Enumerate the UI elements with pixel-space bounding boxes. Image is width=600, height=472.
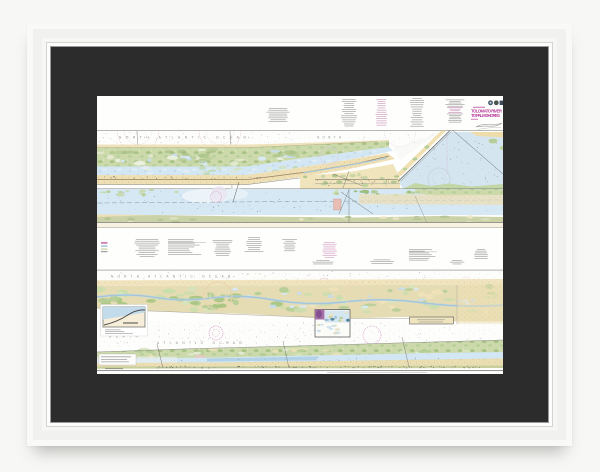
svg-text:ATLANTIC OCEAN: ATLANTIC OCEAN [157,341,246,345]
svg-text:TO PALM SHORES: TO PALM SHORES [471,113,500,118]
svg-text:NORTH ATLANTIC OCEAN: NORTH ATLANTIC OCEAN [119,136,250,140]
svg-text:NORTH: NORTH [317,136,344,140]
svg-text:NORTH ATLANTIC OCEAN: NORTH ATLANTIC OCEAN [111,275,234,279]
